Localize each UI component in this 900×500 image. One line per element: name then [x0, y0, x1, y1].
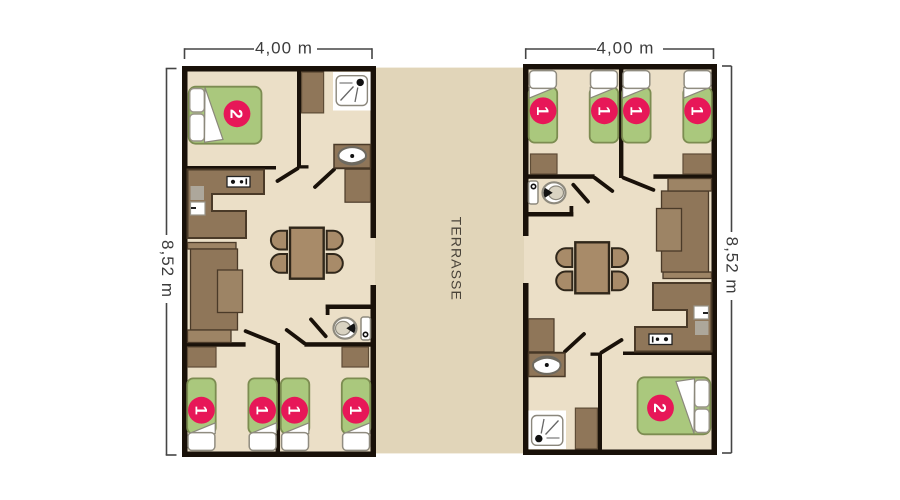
svg-text:1: 1 [533, 106, 551, 115]
svg-text:1: 1 [688, 106, 706, 115]
svg-text:TERRASSE: TERRASSE [449, 217, 465, 301]
svg-text:1: 1 [285, 406, 303, 415]
svg-text:8,52 m: 8,52 m [158, 240, 177, 298]
svg-text:2: 2 [227, 109, 247, 119]
svg-text:1: 1 [253, 406, 271, 415]
svg-text:4,00 m: 4,00 m [597, 39, 655, 58]
svg-text:2: 2 [650, 403, 670, 413]
svg-text:8,52 m: 8,52 m [723, 237, 742, 295]
svg-text:4,00 m: 4,00 m [255, 39, 313, 58]
svg-text:1: 1 [346, 406, 364, 415]
svg-text:1: 1 [594, 106, 612, 115]
svg-text:1: 1 [191, 406, 209, 415]
svg-text:1: 1 [626, 106, 644, 115]
